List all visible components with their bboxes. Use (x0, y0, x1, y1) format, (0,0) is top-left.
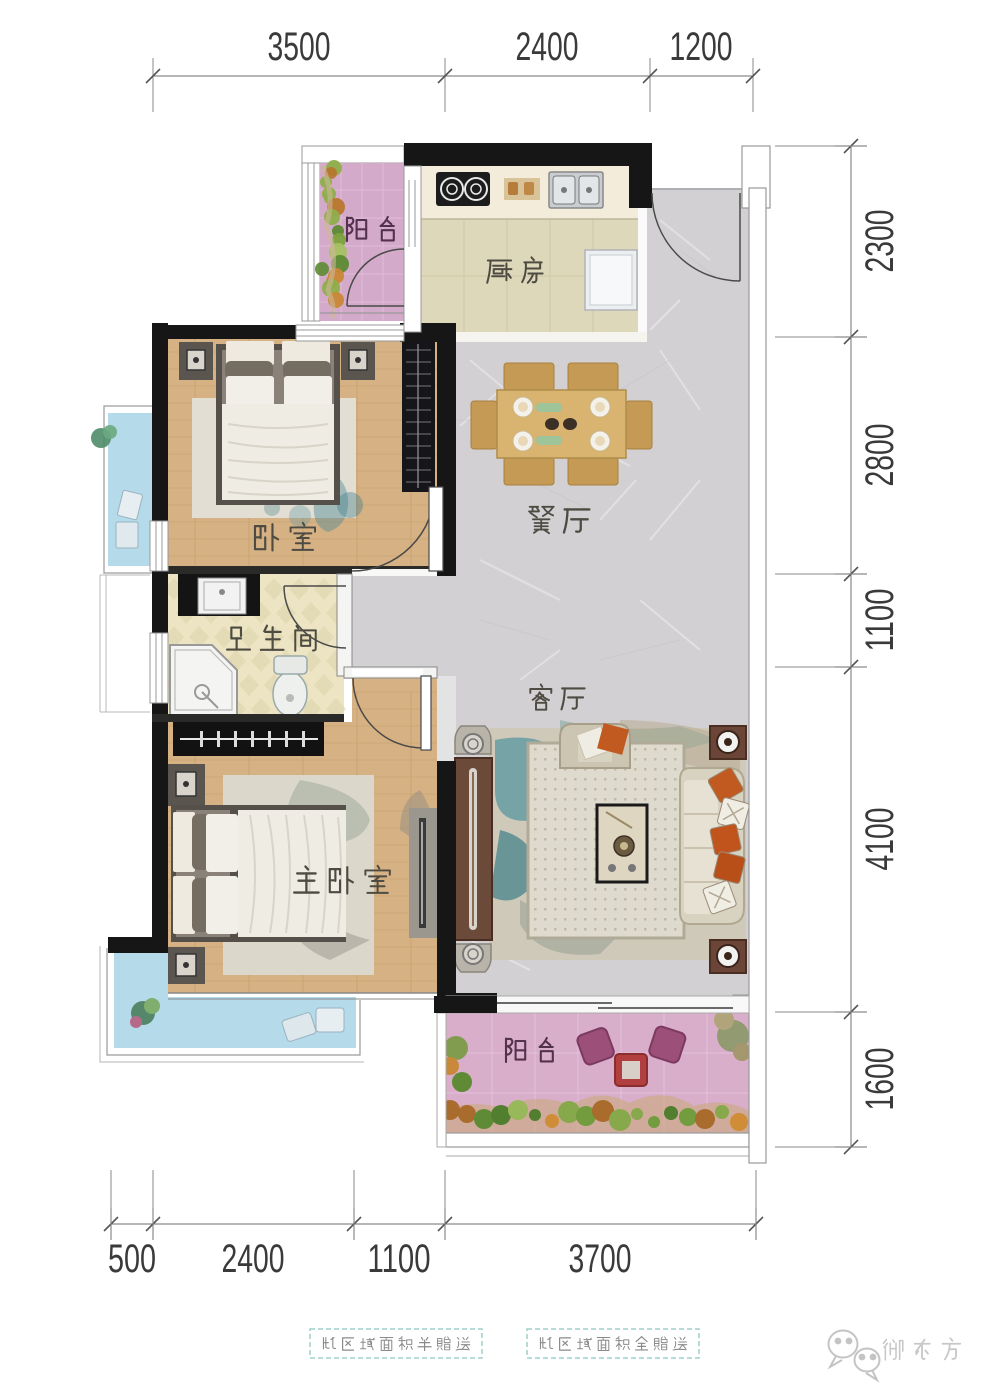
svg-text:2300: 2300 (858, 210, 902, 273)
svg-text:3700: 3700 (569, 1237, 632, 1281)
svg-text:2400: 2400 (222, 1237, 285, 1281)
svg-text:500: 500 (108, 1237, 156, 1281)
svg-text:2400: 2400 (516, 25, 579, 69)
svg-text:2800: 2800 (858, 424, 902, 487)
svg-text:1200: 1200 (670, 25, 733, 69)
svg-text:1600: 1600 (858, 1048, 902, 1111)
svg-text:1100: 1100 (858, 589, 902, 652)
svg-text:4100: 4100 (858, 808, 902, 871)
svg-text:1100: 1100 (368, 1237, 431, 1281)
svg-text:3500: 3500 (268, 25, 331, 69)
